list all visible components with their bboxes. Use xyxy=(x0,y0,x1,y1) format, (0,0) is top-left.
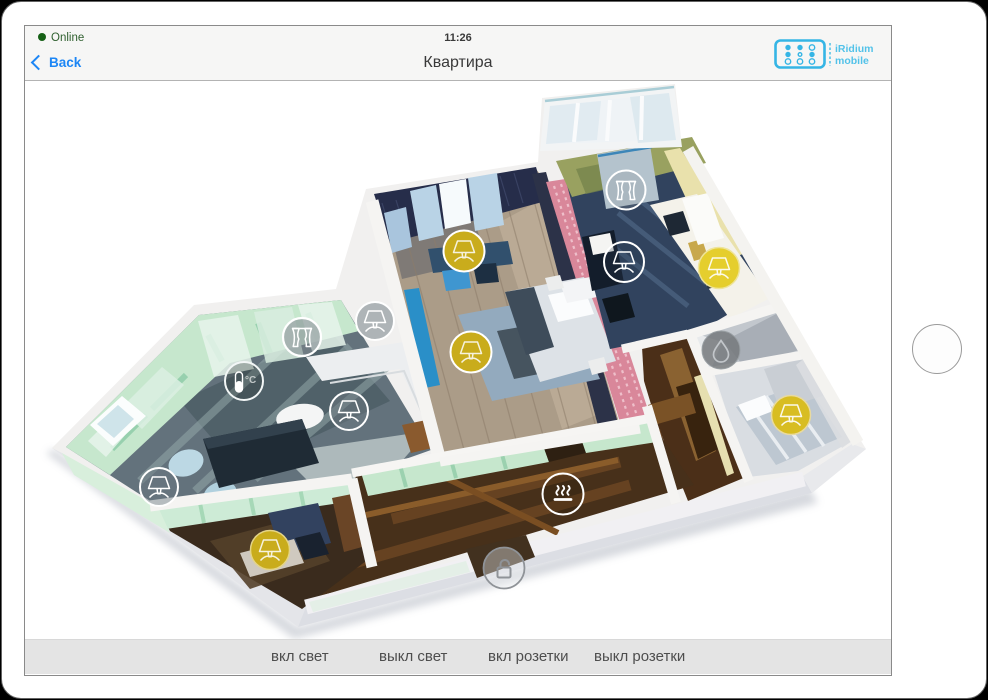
svg-text:iRidium: iRidium xyxy=(835,43,874,55)
svg-text:°C: °C xyxy=(245,375,256,386)
svg-text:mobile: mobile xyxy=(835,55,869,67)
